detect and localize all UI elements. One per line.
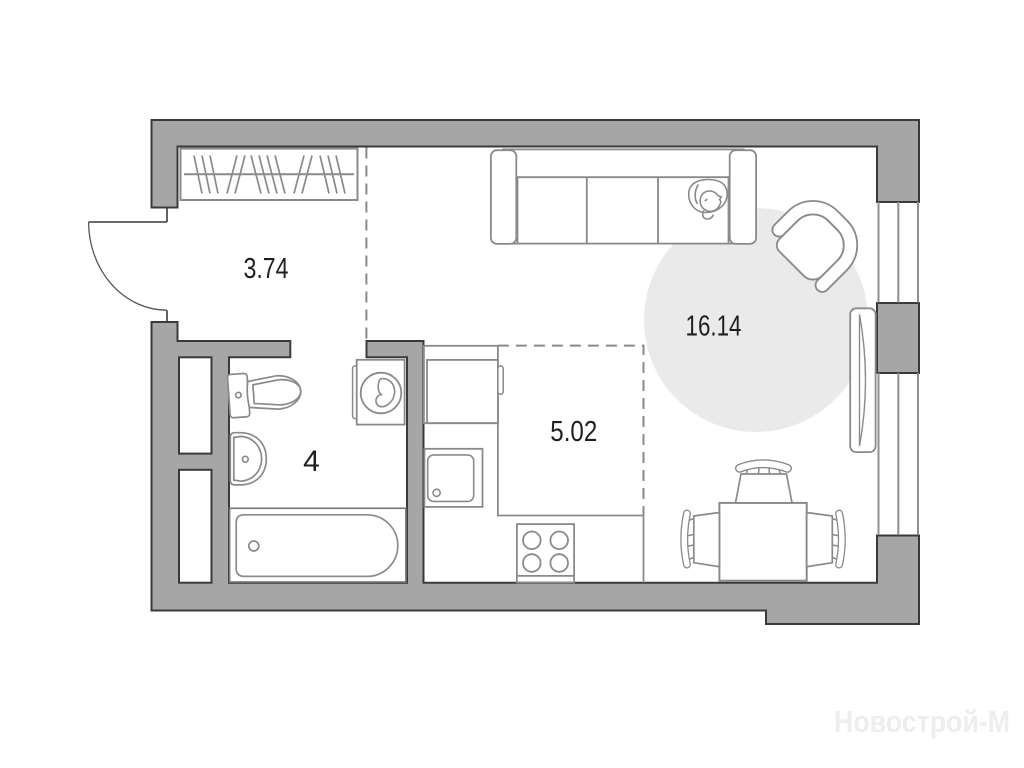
svg-text:4: 4 xyxy=(303,445,320,478)
svg-text:Новострой-М: Новострой-М xyxy=(834,704,1010,739)
svg-text:16.14: 16.14 xyxy=(686,311,742,343)
svg-text:3.74: 3.74 xyxy=(244,253,289,285)
svg-text:5.02: 5.02 xyxy=(550,416,597,448)
